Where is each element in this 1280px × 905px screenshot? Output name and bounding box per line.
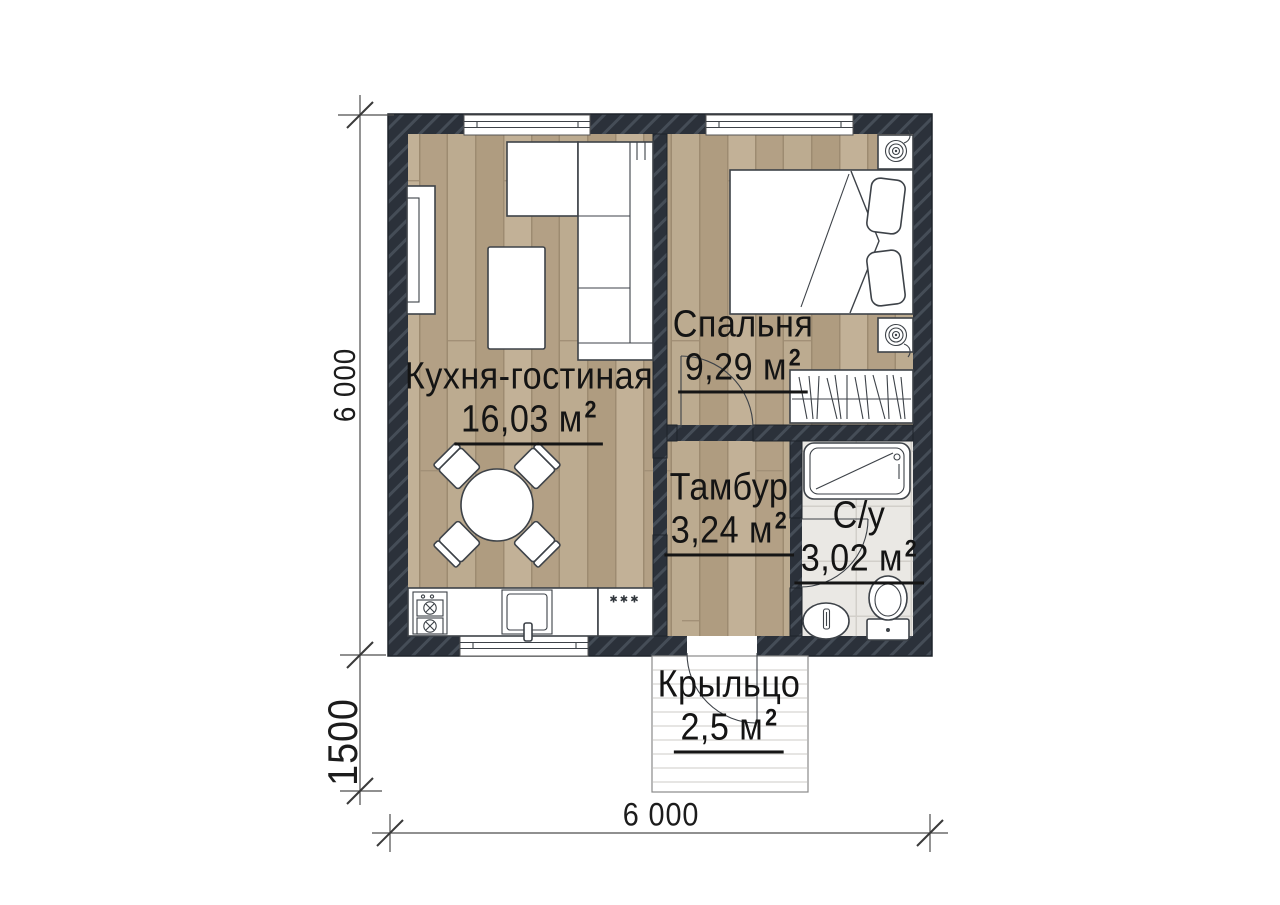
room-name: Крыльцо — [658, 664, 801, 705]
room-area: 9,29 м2 — [678, 348, 807, 394]
room-label-bathroom: С/у 3,02 м2 — [794, 495, 923, 584]
toilet — [867, 576, 909, 640]
room-area: 3,24 м2 — [664, 511, 793, 557]
room-name: С/у — [794, 495, 923, 536]
dimension-left-total: 6 000 — [327, 348, 363, 422]
pillow — [866, 249, 906, 307]
room-name: Спальня — [673, 304, 814, 345]
bed — [730, 170, 913, 314]
nightstand — [878, 318, 913, 357]
room-area: 16,03 м2 — [455, 400, 604, 446]
pillow — [866, 177, 906, 235]
room-label-bedroom: Спальня 9,29 м2 — [673, 304, 814, 393]
room-area: 3,02 м2 — [794, 539, 923, 585]
room-name: Кухня-гостиная — [405, 356, 653, 397]
room-label-vestibule: Тамбур 3,24 м2 — [664, 467, 793, 556]
coffee-table — [488, 247, 545, 349]
living-room-window — [464, 115, 590, 135]
freezer-stars-mark: ✱✱✱ — [609, 595, 640, 606]
bathtub — [804, 443, 910, 499]
nightstand — [878, 130, 913, 169]
kitchen-counter — [408, 588, 598, 641]
dimension-bottom-total: 6 000 — [623, 797, 700, 834]
room-area: 2,5 м2 — [674, 708, 784, 754]
dining-table — [461, 469, 533, 541]
room-label-kitchen-living: Кухня-гостиная 16,03 м2 — [405, 356, 653, 445]
room-name: Тамбур — [664, 467, 793, 508]
floor-plan-drawing — [0, 0, 1280, 905]
tv-stand — [407, 186, 435, 314]
washbasin — [803, 603, 849, 639]
floor-plan: Кухня-гостиная 16,03 м2 Спальня 9,29 м2 … — [0, 0, 1280, 905]
bedroom-window — [706, 115, 853, 135]
room-label-porch: Крыльцо 2,5 м2 — [658, 664, 801, 753]
dimension-left-porch: 1500 — [319, 698, 367, 786]
entrance-opening — [687, 636, 757, 656]
